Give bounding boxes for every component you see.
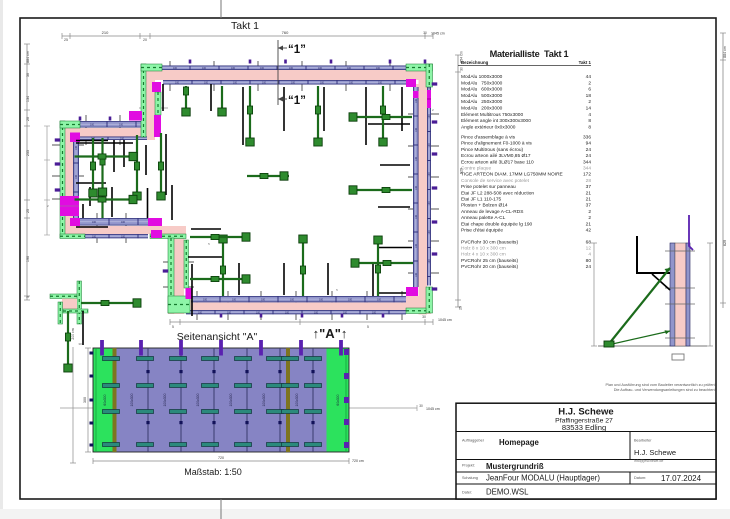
svg-text:100: 100 xyxy=(202,67,207,70)
svg-text:Anneau palette A-CL: Anneau palette A-CL xyxy=(461,215,506,221)
svg-text:100: 100 xyxy=(92,221,97,224)
svg-text:100: 100 xyxy=(314,311,319,314)
svg-text:100: 100 xyxy=(415,272,418,277)
svg-text:100: 100 xyxy=(347,67,352,70)
svg-text:100: 100 xyxy=(428,143,431,148)
svg-text:100: 100 xyxy=(428,201,431,206)
svg-text:344: 344 xyxy=(583,166,591,172)
svg-text:83533 Edling: 83533 Edling xyxy=(562,423,606,432)
svg-text:PVCRohr 20 cm (bauseits): PVCRohr 20 cm (bauseits) xyxy=(461,264,518,270)
svg-text:Angle extérieur 0x0x3000: Angle extérieur 0x0x3000 xyxy=(461,124,516,130)
svg-text:Ecrou arteon ailé 3LVM0,85 Ø17: Ecrou arteon ailé 3LVM0,85 Ø17 xyxy=(461,153,531,159)
svg-text:24: 24 xyxy=(586,153,592,159)
svg-text:25: 25 xyxy=(459,306,463,310)
svg-text:18: 18 xyxy=(586,93,592,99)
svg-text:100: 100 xyxy=(233,81,238,84)
svg-text:300: 300 xyxy=(83,397,87,403)
svg-text:TIGE ARTEON DIAM. 17MM LG750MM: TIGE ARTEON DIAM. 17MM LG750MM NOIRE xyxy=(461,172,563,178)
svg-text:17.07.2024: 17.07.2024 xyxy=(661,474,702,483)
svg-text:Anneau de levage A-CL-RDS: Anneau de levage A-CL-RDS xyxy=(461,209,523,215)
svg-text:Plan und Ausführung sind vom B: Plan und Ausführung sind vom Bauleiter v… xyxy=(606,383,716,387)
svg-text:Takt 1: Takt 1 xyxy=(579,60,592,65)
svg-text:Etai JF L1 110-175: Etai JF L1 110-175 xyxy=(461,197,502,203)
svg-text:Maßstab: 1:50: Maßstab: 1:50 xyxy=(184,467,242,477)
svg-text:H.J. Schewe: H.J. Schewe xyxy=(634,448,676,457)
svg-text:20: 20 xyxy=(26,117,30,121)
svg-text:Materialliste Takt 1: Materialliste Takt 1 xyxy=(490,49,569,59)
svg-text:30: 30 xyxy=(423,31,427,35)
svg-text:100: 100 xyxy=(231,67,236,70)
svg-text:100: 100 xyxy=(120,137,125,140)
svg-text:100: 100 xyxy=(285,311,290,314)
svg-text:24: 24 xyxy=(586,147,592,153)
svg-text:H.J. Schewe: H.J. Schewe xyxy=(558,407,613,418)
svg-text:100: 100 xyxy=(428,230,431,235)
svg-text:100: 100 xyxy=(75,174,78,179)
svg-text:80: 80 xyxy=(586,258,592,264)
svg-text:100: 100 xyxy=(260,67,265,70)
svg-text:2: 2 xyxy=(588,80,591,86)
svg-text:100: 100 xyxy=(318,67,323,70)
svg-text:ModAlu 200x3000: ModAlu 200x3000 xyxy=(461,106,503,112)
svg-text:100x300: 100x300 xyxy=(130,393,134,406)
svg-text:100: 100 xyxy=(175,81,180,84)
svg-text:100x300: 100x300 xyxy=(229,393,233,406)
svg-text:100x300: 100x300 xyxy=(163,393,167,406)
svg-text:20: 20 xyxy=(143,38,147,42)
svg-text:Console de service avec potele: Console de service avec potelet xyxy=(461,178,530,184)
svg-text:100: 100 xyxy=(377,298,382,301)
svg-text:30: 30 xyxy=(422,315,426,319)
svg-text:344: 344 xyxy=(583,159,591,165)
svg-text:Pince Multitrous (sans écrou): Pince Multitrous (sans écrou) xyxy=(461,147,524,153)
svg-text:1045 cm: 1045 cm xyxy=(431,32,445,36)
svg-text:ModAlu 1000x3000: ModAlu 1000x3000 xyxy=(461,74,503,80)
svg-text:Etai JF L2 288-508 avec réduct: Etai JF L2 288-508 avec réduction xyxy=(461,190,534,196)
svg-text:100: 100 xyxy=(376,67,381,70)
svg-text:Prise potelet sur panneau: Prise potelet sur panneau xyxy=(461,184,516,190)
svg-text:100: 100 xyxy=(198,311,203,314)
svg-text:760: 760 xyxy=(282,30,289,35)
svg-text:100: 100 xyxy=(121,221,126,224)
svg-text:DEMO.WSL: DEMO.WSL xyxy=(486,487,529,496)
svg-text:Ecrou arteon ailé 3LØ17 base 1: Ecrou arteon ailé 3LØ17 base 110 xyxy=(461,159,534,165)
svg-text:Bearbeiter: Bearbeiter xyxy=(634,439,652,443)
svg-text:37: 37 xyxy=(586,184,592,190)
svg-text:30: 30 xyxy=(78,342,82,346)
svg-text:100: 100 xyxy=(348,298,353,301)
svg-text:6: 6 xyxy=(588,87,591,93)
svg-text:2: 2 xyxy=(588,209,591,215)
svg-text:100: 100 xyxy=(415,214,418,219)
svg-text:190: 190 xyxy=(26,256,30,262)
svg-text:21: 21 xyxy=(586,221,592,227)
svg-text:68: 68 xyxy=(586,239,592,245)
svg-text:24: 24 xyxy=(586,264,592,270)
svg-text:100: 100 xyxy=(173,67,178,70)
svg-text:ModAlu 750x3000: ModAlu 750x3000 xyxy=(461,80,503,86)
svg-text:Mustergrundriß: Mustergrundriß xyxy=(486,462,544,471)
svg-text:1045 cm: 1045 cm xyxy=(426,407,440,411)
svg-text:100: 100 xyxy=(291,81,296,84)
svg-text:Prise d'étai équipée: Prise d'étai équipée xyxy=(461,228,503,234)
svg-text:8: 8 xyxy=(588,124,591,130)
svg-text:ModAlu 600x3000: ModAlu 600x3000 xyxy=(461,87,503,93)
svg-text:60x300: 60x300 xyxy=(336,394,340,405)
svg-text:100: 100 xyxy=(75,145,78,150)
svg-text:100: 100 xyxy=(320,81,325,84)
svg-text:Takt 1: Takt 1 xyxy=(231,20,259,32)
svg-text:100x300: 100x300 xyxy=(262,393,266,406)
svg-text:“1”: “1” xyxy=(288,44,306,56)
svg-text:Pince d'assemblage à vis: Pince d'assemblage à vis xyxy=(461,135,516,141)
svg-text:4: 4 xyxy=(588,252,591,258)
svg-text:30: 30 xyxy=(26,73,30,77)
svg-text:629: 629 xyxy=(723,240,727,246)
svg-text:100: 100 xyxy=(428,259,431,264)
svg-text:100: 100 xyxy=(90,123,95,126)
svg-text:JeanFour MODALU (Hauptlager): JeanFour MODALU (Hauptlager) xyxy=(486,474,600,483)
svg-text:44: 44 xyxy=(586,74,592,80)
svg-text:336: 336 xyxy=(583,135,591,141)
svg-text:720: 720 xyxy=(218,456,224,460)
svg-text:Schalung: Schalung xyxy=(462,476,478,480)
svg-text:5: 5 xyxy=(26,296,30,298)
svg-text:↑"A"↑: ↑"A"↑ xyxy=(313,326,348,341)
svg-text:info@jeschewe.de: info@jeschewe.de xyxy=(634,459,663,463)
svg-text:100: 100 xyxy=(372,311,377,314)
svg-text:Etai chape double équipée lg 1: Etai chape double équipée lg 190 xyxy=(461,221,533,227)
svg-text:100: 100 xyxy=(227,311,232,314)
svg-text:100: 100 xyxy=(415,156,418,161)
svg-text:100: 100 xyxy=(92,235,97,238)
svg-text:“1”: “1” xyxy=(288,95,306,107)
svg-text:255: 255 xyxy=(26,150,30,156)
svg-text:60x300: 60x300 xyxy=(103,394,107,405)
svg-text:100: 100 xyxy=(290,298,295,301)
svg-text:12: 12 xyxy=(586,246,592,252)
svg-text:30: 30 xyxy=(460,67,464,71)
svg-text:4: 4 xyxy=(588,112,591,118)
svg-text:100: 100 xyxy=(203,298,208,301)
svg-text:ModAlu 250x3000: ModAlu 250x3000 xyxy=(461,99,503,105)
svg-text:25: 25 xyxy=(26,209,30,213)
svg-text:Plosten + Bolzen Ø14: Plosten + Bolzen Ø14 xyxy=(461,203,508,209)
svg-text:37: 37 xyxy=(586,203,592,209)
svg-text:172: 172 xyxy=(583,172,591,178)
svg-text:100x300: 100x300 xyxy=(196,393,200,406)
svg-text:134: 134 xyxy=(26,96,30,102)
svg-text:30: 30 xyxy=(419,404,423,408)
svg-text:1045 cm: 1045 cm xyxy=(438,318,452,322)
svg-text:100: 100 xyxy=(261,298,266,301)
svg-text:5: 5 xyxy=(367,325,369,329)
svg-text:25: 25 xyxy=(64,38,68,42)
svg-text:884 cm: 884 cm xyxy=(723,46,727,58)
svg-text:100: 100 xyxy=(119,123,124,126)
svg-text:Holz 4 x 10 x 300 cm: Holz 4 x 10 x 300 cm xyxy=(461,252,506,258)
svg-text:100: 100 xyxy=(415,127,418,132)
svg-text:100: 100 xyxy=(204,81,209,84)
svg-text:2: 2 xyxy=(588,99,591,105)
svg-text:100: 100 xyxy=(378,81,383,84)
svg-text:100x300: 100x300 xyxy=(295,393,299,406)
svg-text:Elément angle int 300x300x3000: Elément angle int 300x300x3000 xyxy=(461,118,531,124)
svg-text:100: 100 xyxy=(262,81,267,84)
svg-text:94: 94 xyxy=(586,141,592,147)
svg-text:100: 100 xyxy=(415,185,418,190)
svg-text:100: 100 xyxy=(415,243,418,248)
svg-text:42: 42 xyxy=(586,228,592,234)
svg-text:Bezeichnung: Bezeichnung xyxy=(461,60,489,65)
svg-text:100: 100 xyxy=(343,311,348,314)
svg-text:Projekt:: Projekt: xyxy=(462,464,475,468)
svg-text:Pince d'alignement F0-1000 à v: Pince d'alignement F0-1000 à vis xyxy=(461,141,532,147)
svg-text:100: 100 xyxy=(415,98,418,103)
svg-text:100: 100 xyxy=(428,114,431,119)
svg-text:8: 8 xyxy=(588,118,591,124)
svg-text:21: 21 xyxy=(586,190,592,196)
svg-text:14: 14 xyxy=(586,106,592,112)
svg-text:210: 210 xyxy=(102,30,109,35)
svg-text:100: 100 xyxy=(319,298,324,301)
svg-text:100: 100 xyxy=(349,81,354,84)
svg-text:100: 100 xyxy=(121,235,126,238)
svg-text:Die Aufbau- und Verwendungsanl: Die Aufbau- und Verwendungsanleitungen s… xyxy=(614,388,716,392)
svg-text:100: 100 xyxy=(232,298,237,301)
svg-text:Elément Multitrous 750x3000: Elément Multitrous 750x3000 xyxy=(461,112,523,118)
svg-text:ModAlu 500x3000: ModAlu 500x3000 xyxy=(461,93,503,99)
svg-text:100: 100 xyxy=(289,67,294,70)
svg-text:2: 2 xyxy=(588,215,591,221)
svg-text:884 cm: 884 cm xyxy=(26,51,30,63)
svg-text:Datei:: Datei: xyxy=(462,491,472,495)
svg-text:Datum:: Datum: xyxy=(634,476,646,480)
svg-text:Seitenansicht "A": Seitenansicht "A" xyxy=(177,331,258,343)
svg-text:Holz 8 x 10 x 300 cm: Holz 8 x 10 x 300 cm xyxy=(461,246,506,252)
svg-text:720 cm: 720 cm xyxy=(352,459,364,463)
svg-text:100: 100 xyxy=(428,172,431,177)
svg-text:Homepage: Homepage xyxy=(499,438,540,447)
svg-text:28: 28 xyxy=(586,178,592,184)
svg-text:200 cm: 200 cm xyxy=(71,328,75,339)
svg-text:5: 5 xyxy=(172,325,174,329)
svg-text:PVCRohr 25 cm (bauseits): PVCRohr 25 cm (bauseits) xyxy=(461,258,518,264)
svg-text:21: 21 xyxy=(586,197,592,203)
svg-text:Contre plaque: Contre plaque xyxy=(461,166,491,172)
svg-text:Auftraggeber: Auftraggeber xyxy=(462,439,485,443)
svg-text:PVCRohr 30 cm (bauseits): PVCRohr 30 cm (bauseits) xyxy=(461,239,518,245)
